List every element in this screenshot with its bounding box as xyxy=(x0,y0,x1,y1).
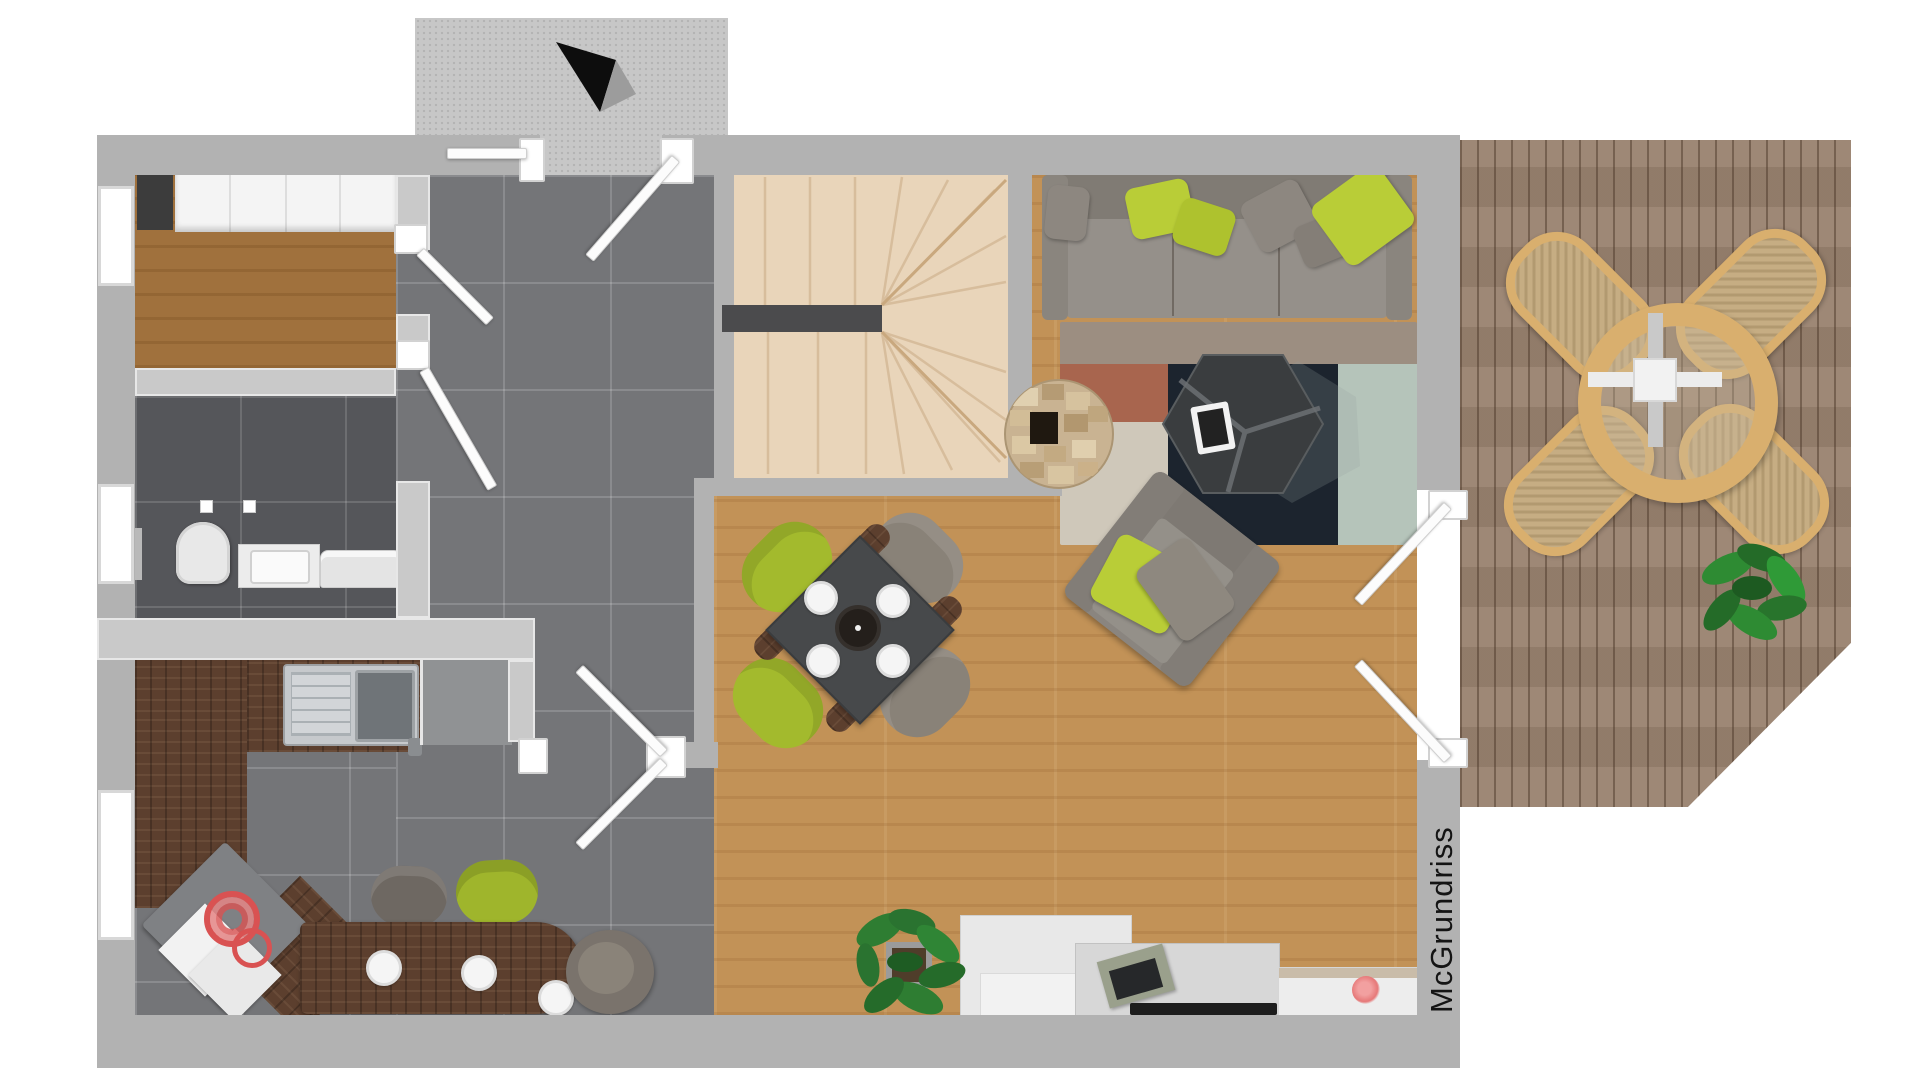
front-door-leaf-flat xyxy=(447,148,527,159)
floorplan-canvas: McGrundriss xyxy=(0,0,1920,1080)
induction-ring-small xyxy=(232,928,272,968)
rug-taupe xyxy=(1060,322,1417,364)
watermark-text: McGrundriss xyxy=(1424,815,1468,1025)
fridge-cabinet xyxy=(420,660,512,745)
washing-machine xyxy=(320,550,402,588)
dining-plate-3 xyxy=(806,644,840,678)
dining-plate-2 xyxy=(876,584,910,618)
tv-bar xyxy=(1130,1003,1277,1015)
window-kitchen xyxy=(98,790,134,940)
bath-glass-1 xyxy=(200,500,213,513)
wall-hall-living xyxy=(694,478,714,742)
wall-bath-bottom xyxy=(97,618,535,660)
wall-right-upper xyxy=(1417,135,1460,490)
sink-basin xyxy=(355,670,415,742)
sink-drainboard xyxy=(291,672,351,736)
swing-door-post-left xyxy=(518,738,548,774)
staircase xyxy=(722,175,1008,478)
wall-swing-stub xyxy=(682,742,718,768)
wall-kitchen-right xyxy=(508,660,535,742)
wall-bottom xyxy=(97,1015,1460,1068)
wall-stairs-bottom xyxy=(714,478,1062,496)
wall-stairs-right xyxy=(1008,175,1032,478)
window-bathroom xyxy=(98,484,134,584)
bar-chair-green xyxy=(454,858,539,926)
wall-stairs-left xyxy=(714,175,734,478)
tub-chair-seat xyxy=(578,942,634,994)
dining-plate-4 xyxy=(876,644,910,678)
wall-top-right xyxy=(662,135,1460,175)
flower-pink-right xyxy=(1352,976,1380,1004)
bar-plate-2 xyxy=(461,955,497,991)
window-storage xyxy=(98,186,134,286)
terrace-table xyxy=(1578,303,1778,503)
dining-plate-1 xyxy=(804,581,838,615)
washbasin-bowl xyxy=(250,550,310,584)
dark-cabinet xyxy=(137,173,173,230)
terrace-table-center xyxy=(1633,358,1677,402)
bathroom-door-post xyxy=(396,340,430,370)
sofa-pillow-gray-3 xyxy=(1043,184,1090,242)
wall-storage-bath xyxy=(135,368,396,396)
rug-rust xyxy=(1060,364,1168,422)
front-door-post-left xyxy=(519,138,545,182)
rug xyxy=(1060,322,1417,545)
bath-glass-2 xyxy=(243,500,256,513)
bar-chair-gray xyxy=(370,865,448,928)
toilet xyxy=(176,522,230,584)
wardrobe xyxy=(175,170,397,232)
rug-sage xyxy=(1338,364,1417,545)
bar-plate-1 xyxy=(366,950,402,986)
dining-centerpiece-dot xyxy=(855,625,861,631)
wall-partition-3 xyxy=(396,481,430,618)
